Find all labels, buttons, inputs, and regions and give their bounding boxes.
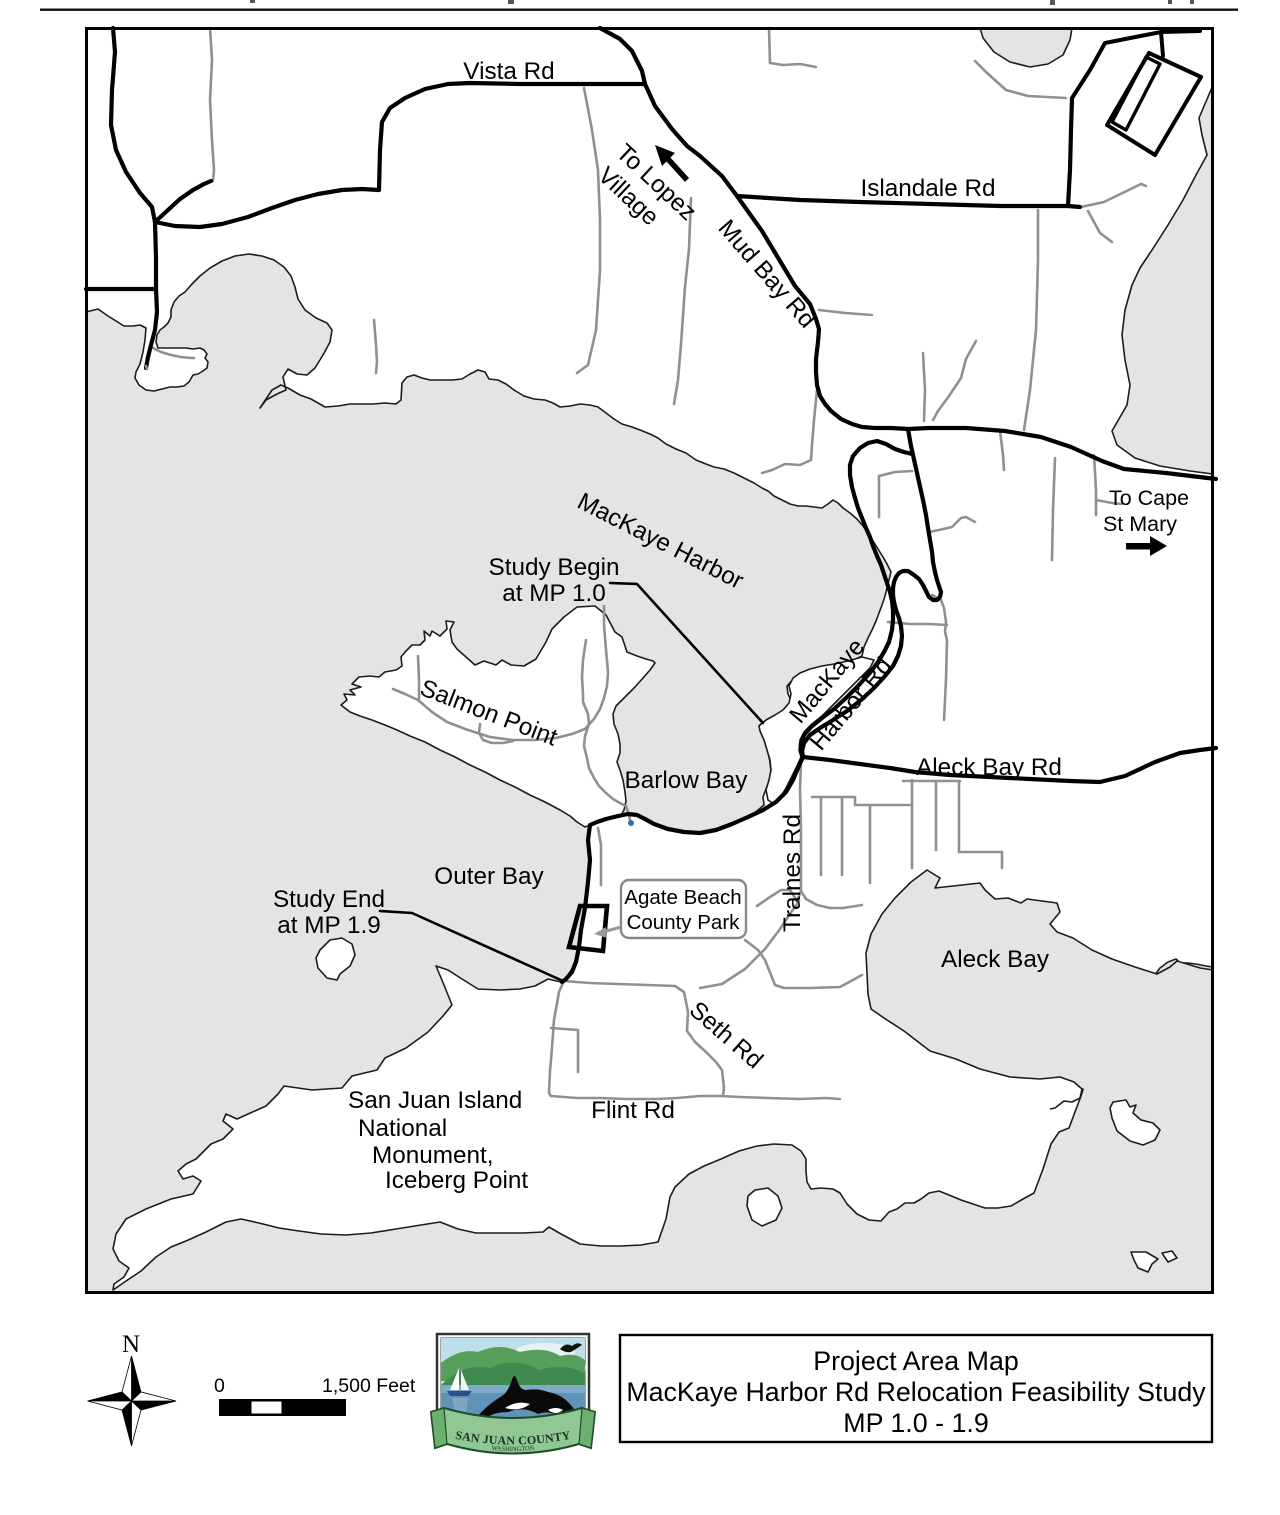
svg-text:Iceberg Point: Iceberg Point [385,1167,528,1194]
svg-text:Aleck Bay: Aleck Bay [941,946,1050,973]
svg-text:Islandale Rd: Islandale Rd [860,175,995,202]
svg-text:N: N [122,1331,140,1358]
svg-text:at MP 1.0: at MP 1.0 [502,580,606,607]
svg-text:MacKaye Harbor Rd Relocation F: MacKaye Harbor Rd Relocation Feasibility… [626,1377,1206,1407]
svg-text:Vista Rd: Vista Rd [463,58,554,85]
svg-text:at MP 1.9: at MP 1.9 [277,912,381,939]
svg-text:Study Begin: Study Begin [488,554,619,581]
svg-text:St Mary: St Mary [1103,512,1177,536]
svg-text:Study End: Study End [273,886,385,913]
svg-text:Outer Bay: Outer Bay [434,863,544,890]
svg-text:To Cape: To Cape [1109,486,1189,510]
svg-text:MP 1.0 - 1.9: MP 1.0 - 1.9 [843,1408,988,1438]
svg-text:1,500 Feet: 1,500 Feet [322,1375,416,1397]
svg-text:Barlow Bay: Barlow Bay [625,767,749,794]
svg-text:0: 0 [214,1375,225,1397]
svg-text:San Juan Island: San Juan Island [348,1087,522,1114]
svg-text:Monument,: Monument, [372,1142,494,1169]
svg-text:National: National [358,1115,447,1142]
svg-text:Project Area Map: Project Area Map [813,1346,1019,1376]
svg-text:Tralnes Rd: Tralnes Rd [779,814,806,932]
svg-text:Flint Rd: Flint Rd [591,1097,675,1124]
svg-text:Agate Beach: Agate Beach [624,886,741,909]
svg-text:Aleck Bay Rd: Aleck Bay Rd [916,754,1062,781]
svg-text:County Park: County Park [627,911,741,934]
